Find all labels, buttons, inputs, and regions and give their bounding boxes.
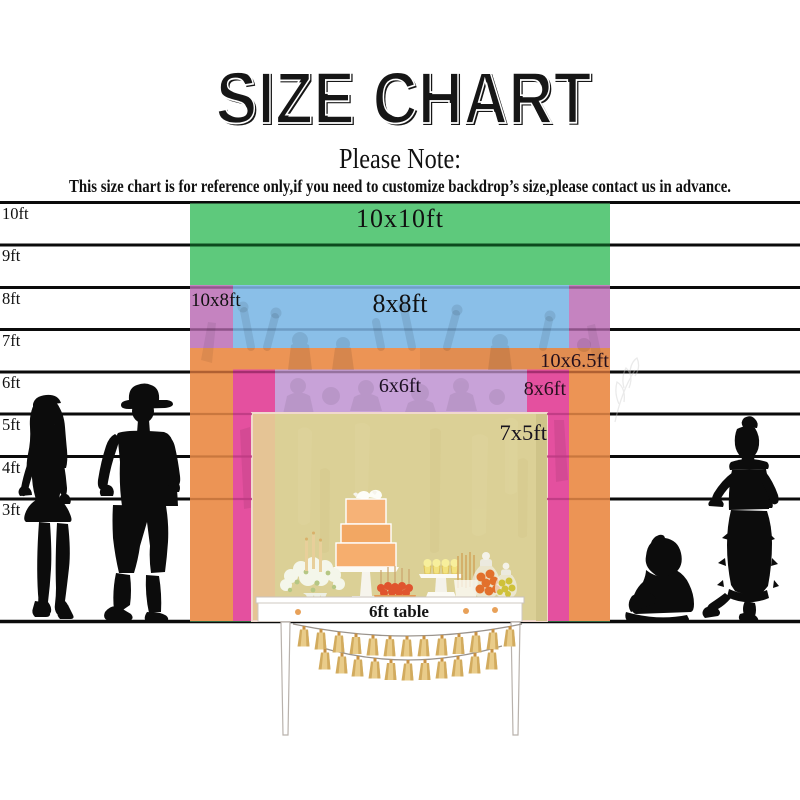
svg-text:SIZE CHART: SIZE CHART xyxy=(215,56,591,139)
svg-text:6ft table: 6ft table xyxy=(369,602,429,621)
svg-text:Please Note:: Please Note: xyxy=(339,144,461,175)
svg-text:3ft: 3ft xyxy=(2,500,21,519)
svg-text:5ft: 5ft xyxy=(2,415,21,434)
svg-text:9ft: 9ft xyxy=(2,246,21,265)
svg-text:7x5ft: 7x5ft xyxy=(500,420,548,445)
svg-text:8ft: 8ft xyxy=(2,289,21,308)
svg-text:7ft: 7ft xyxy=(2,331,21,350)
svg-text:8x6ft: 8x6ft xyxy=(524,378,567,400)
svg-text:6ft: 6ft xyxy=(2,373,21,392)
svg-text:4ft: 4ft xyxy=(2,458,21,477)
svg-text:10x10ft: 10x10ft xyxy=(356,204,444,233)
svg-text:This size chart is for referen: This size chart is for reference only,if… xyxy=(69,176,731,196)
svg-text:10x8ft: 10x8ft xyxy=(191,290,241,311)
svg-text:10ft: 10ft xyxy=(2,204,29,223)
